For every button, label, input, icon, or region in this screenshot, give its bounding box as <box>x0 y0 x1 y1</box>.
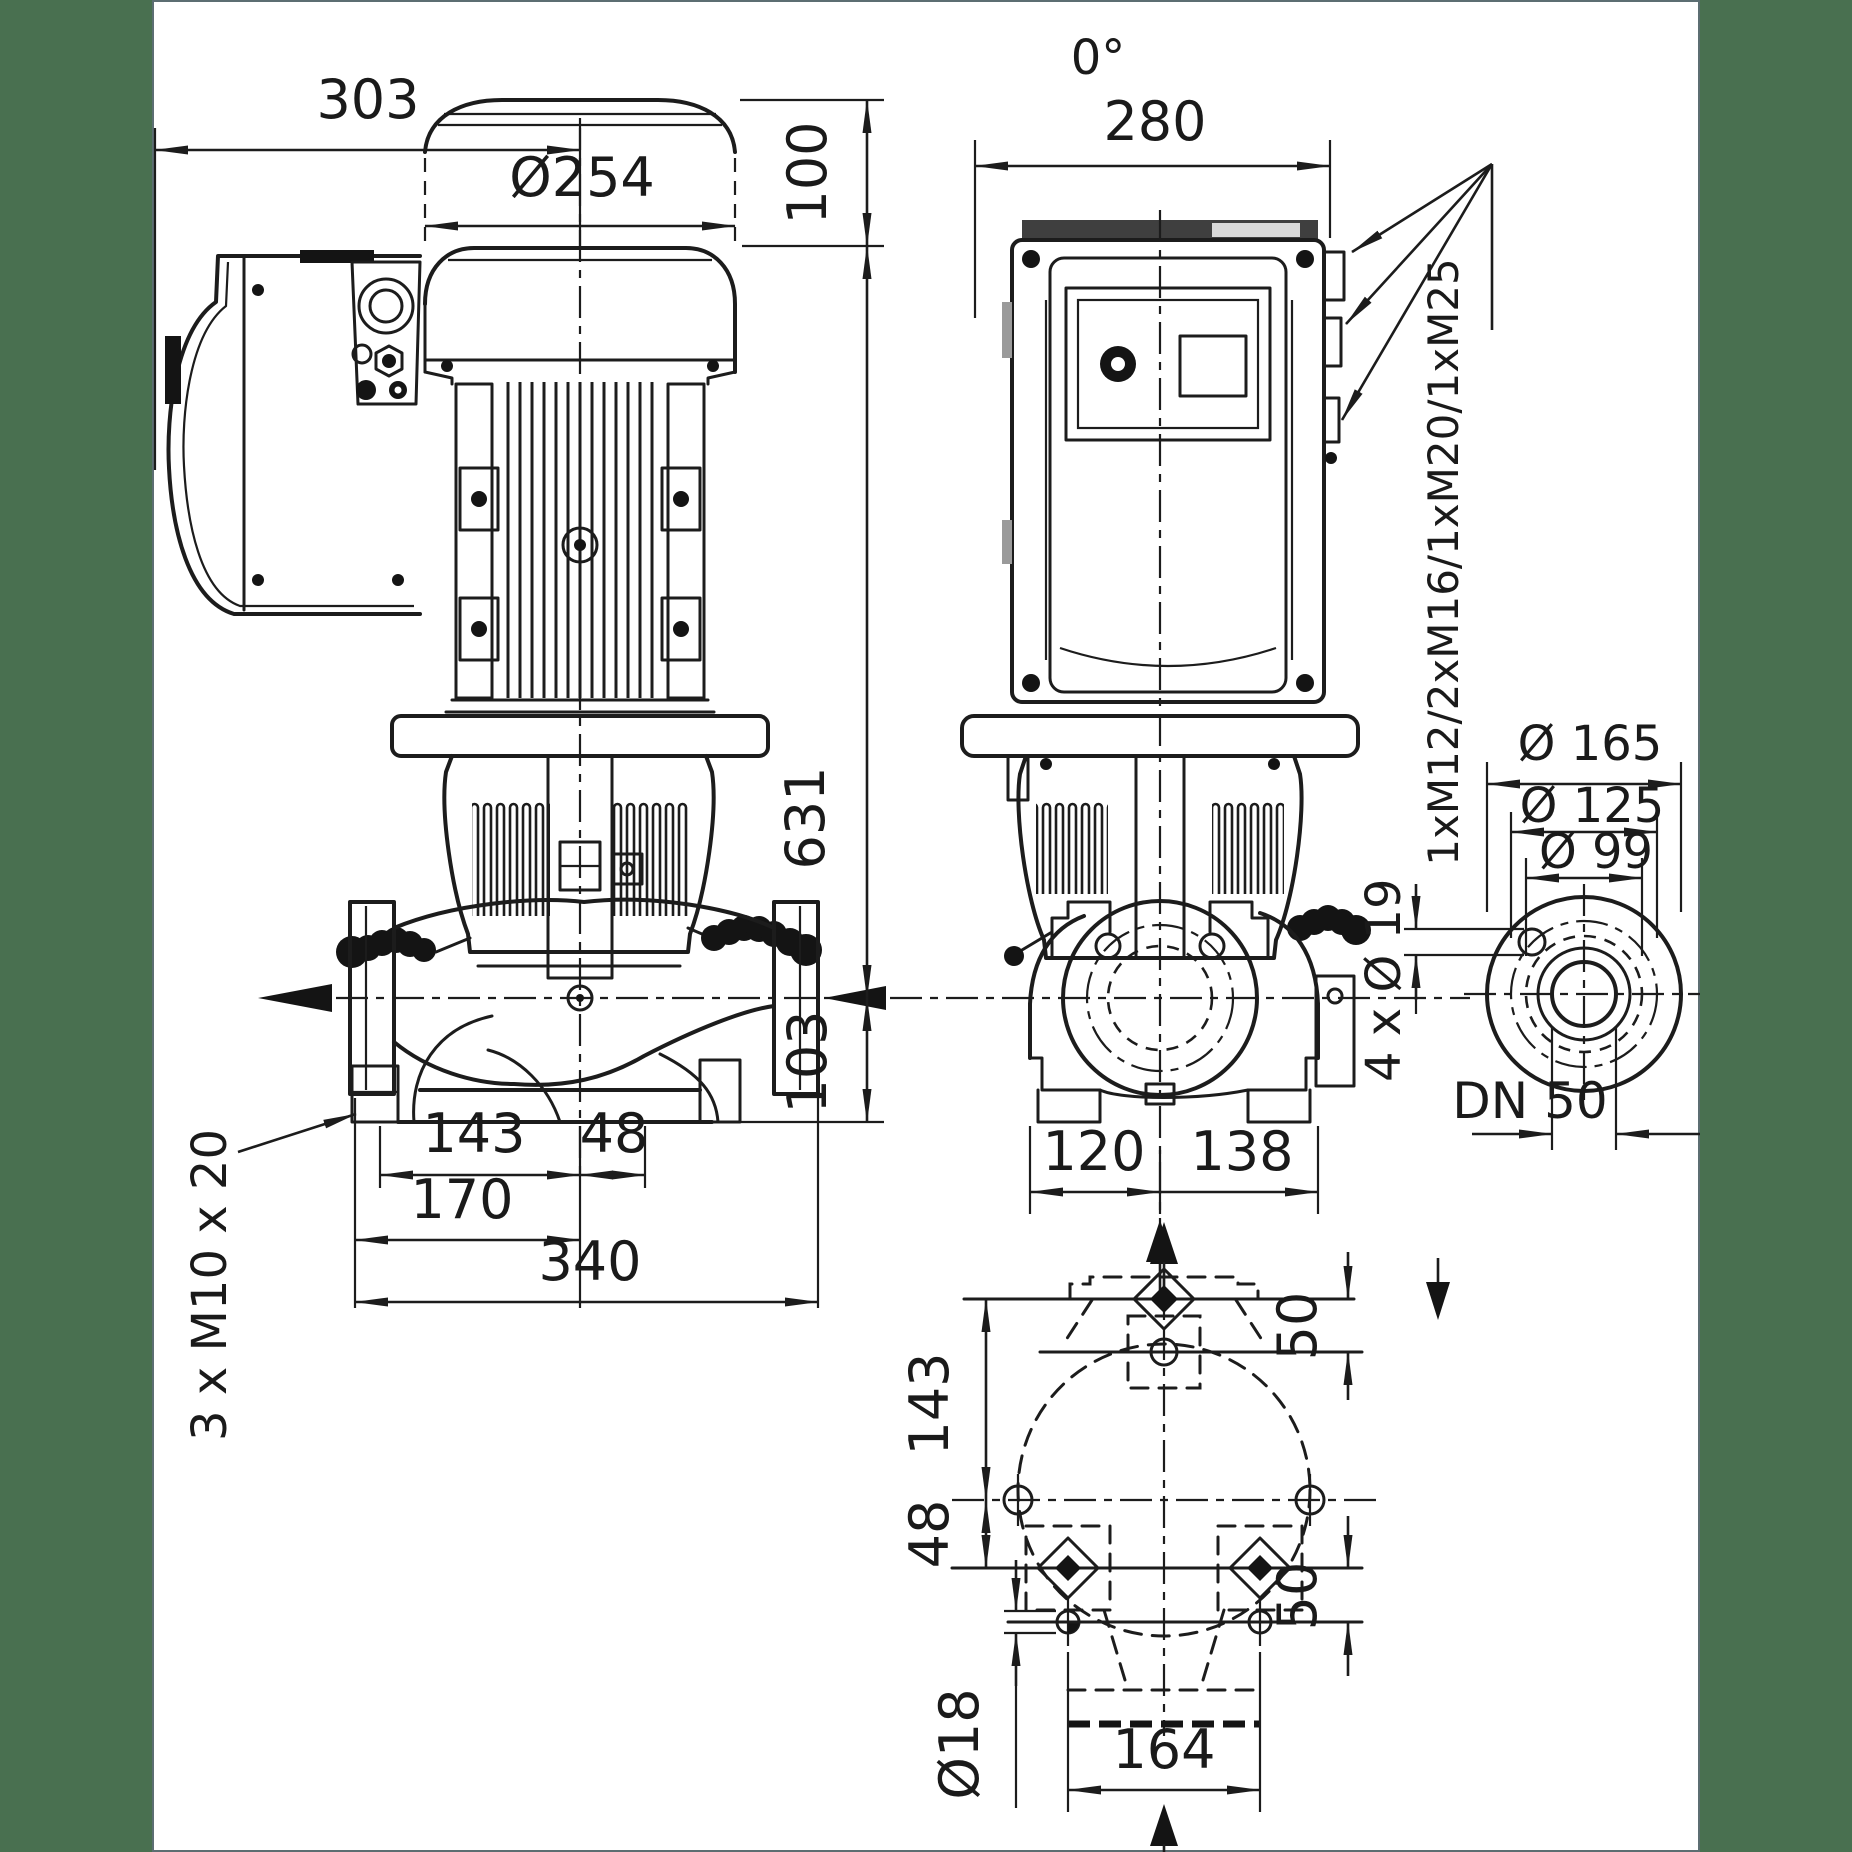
bolt-hole-callout: 4 x Ø 19 <box>1356 878 1524 1082</box>
dim-flange-outer: Ø 165 <box>1518 716 1663 772</box>
module-display-panel <box>1066 288 1270 440</box>
dim-overall: 340 <box>538 1230 641 1293</box>
label-orientation: 0° <box>1071 30 1126 86</box>
dim-flange-to-holes: 143 <box>898 1352 961 1455</box>
cable-gland-3 <box>1324 398 1339 442</box>
dim-port-to-hole: 50 <box>1266 1292 1329 1361</box>
drawing-page: 303 Ø254 <box>0 0 1852 1852</box>
plan-dim-50-bottom: 50 <box>1266 1516 1348 1676</box>
plan-arrow-up-bottom <box>1150 1804 1178 1852</box>
dim-axis-right: 138 <box>1190 1120 1293 1183</box>
dim-hole-diameter: Ø18 <box>928 1688 991 1799</box>
lantern-slots-left <box>472 766 550 916</box>
flange-detail: Ø 165 Ø 125 Ø 99 4 x Ø 19 <box>1356 716 1700 1320</box>
front-bottom-dims: 143 48 170 340 <box>355 1098 818 1308</box>
dim-feet-spacing: 164 <box>1112 1718 1215 1781</box>
control-module <box>165 250 420 614</box>
dim-holes-to-feet: 48 <box>898 1500 961 1569</box>
flow-arrow-left-icon <box>258 984 332 1012</box>
dim-front-width: 303 <box>316 68 419 131</box>
axis-arrow-left-icon <box>824 986 886 1010</box>
dim-foot-to-hole: 50 <box>1266 1562 1329 1631</box>
electronic-module <box>1002 220 1344 702</box>
dim-axis-height: 631 <box>774 766 837 869</box>
plan-dim-50-top: 50 <box>1266 1252 1348 1400</box>
plan-hole-dia-callout: Ø18 <box>928 1560 1056 1808</box>
nominal-bore-dim: DN 50 <box>1452 1028 1700 1150</box>
pump-dimensional-drawing: 303 Ø254 <box>0 0 1852 1852</box>
module-gland-large <box>359 279 413 333</box>
flow-arrow-down <box>1426 1258 1450 1320</box>
pressure-sensor <box>1316 976 1354 1086</box>
label-foot-thread: 3 x M10 x 20 <box>182 1129 238 1441</box>
dim-raised-face: Ø 99 <box>1539 824 1653 880</box>
dim-motor-diameter: Ø254 <box>509 146 655 209</box>
label-bolt-holes: 4 x Ø 19 <box>1356 878 1412 1082</box>
label-nominal-bore: DN 50 <box>1452 1072 1607 1130</box>
dim-cap-height: 100 <box>776 121 839 224</box>
lantern-slots-right <box>612 766 690 916</box>
module-display-window <box>1180 336 1246 396</box>
dim-axis-left: 120 <box>1042 1120 1145 1183</box>
dim-base-height: 103 <box>776 1010 839 1113</box>
label-cable-glands: 1xM12/2xM16/1xM20/1xM25 <box>1419 258 1468 865</box>
foot-thread-callout: 3 x M10 x 20 <box>182 1114 356 1441</box>
side-view: 0° 280 <box>890 30 1492 1298</box>
plan-view: 50 143 48 <box>898 1222 1376 1852</box>
dim-foot-left: 143 <box>422 1102 525 1165</box>
cable-gland-callout: 1xM12/2xM16/1xM20/1xM25 <box>1342 164 1492 866</box>
motor-body <box>425 372 735 712</box>
pump-lantern-side <box>1004 756 1371 1086</box>
dim-flange-axis: 170 <box>410 1168 513 1231</box>
side-bottom-dims: 120 138 <box>1030 1120 1318 1214</box>
dim-foot-right: 48 <box>580 1102 649 1165</box>
module-side-tab <box>165 336 181 404</box>
front-view: 303 Ø254 <box>155 68 886 1441</box>
cable-gland-2 <box>1324 318 1341 366</box>
cable-gland-1 <box>1324 252 1344 300</box>
dim-module-width: 280 <box>1103 90 1206 153</box>
plan-left-dims: 143 48 <box>898 1299 986 1568</box>
